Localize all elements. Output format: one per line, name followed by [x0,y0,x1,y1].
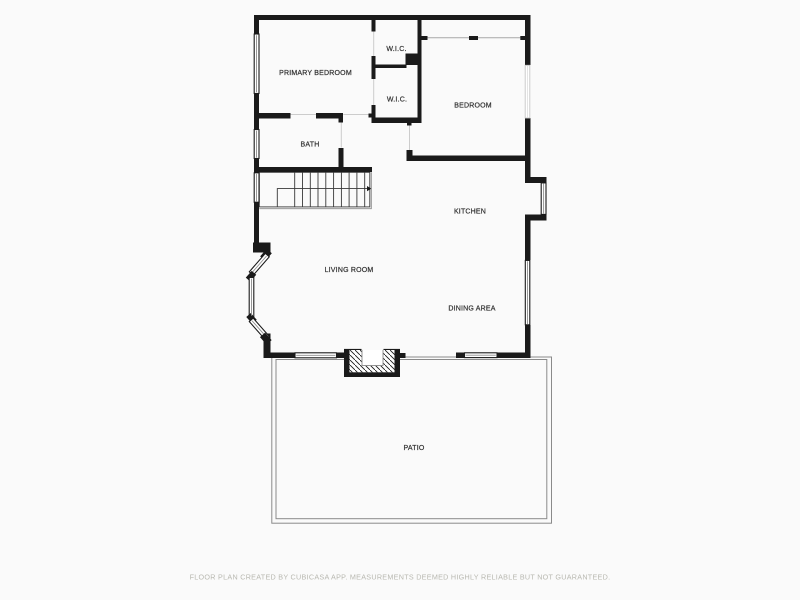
svg-text:W.I.C.: W.I.C. [387,97,407,104]
svg-text:BATH: BATH [301,142,320,149]
svg-text:LIVING ROOM: LIVING ROOM [325,267,374,274]
svg-text:KITCHEN: KITCHEN [454,209,486,216]
svg-text:PRIMARY BEDROOM: PRIMARY BEDROOM [279,70,352,77]
svg-text:BEDROOM: BEDROOM [454,103,492,110]
svg-text:DINING AREA: DINING AREA [448,306,495,313]
svg-text:FLOOR PLAN CREATED BY CUBICASA: FLOOR PLAN CREATED BY CUBICASA APP. MEAS… [190,573,611,582]
svg-text:PATIO: PATIO [404,445,425,452]
svg-text:W.I.C.: W.I.C. [386,46,406,53]
